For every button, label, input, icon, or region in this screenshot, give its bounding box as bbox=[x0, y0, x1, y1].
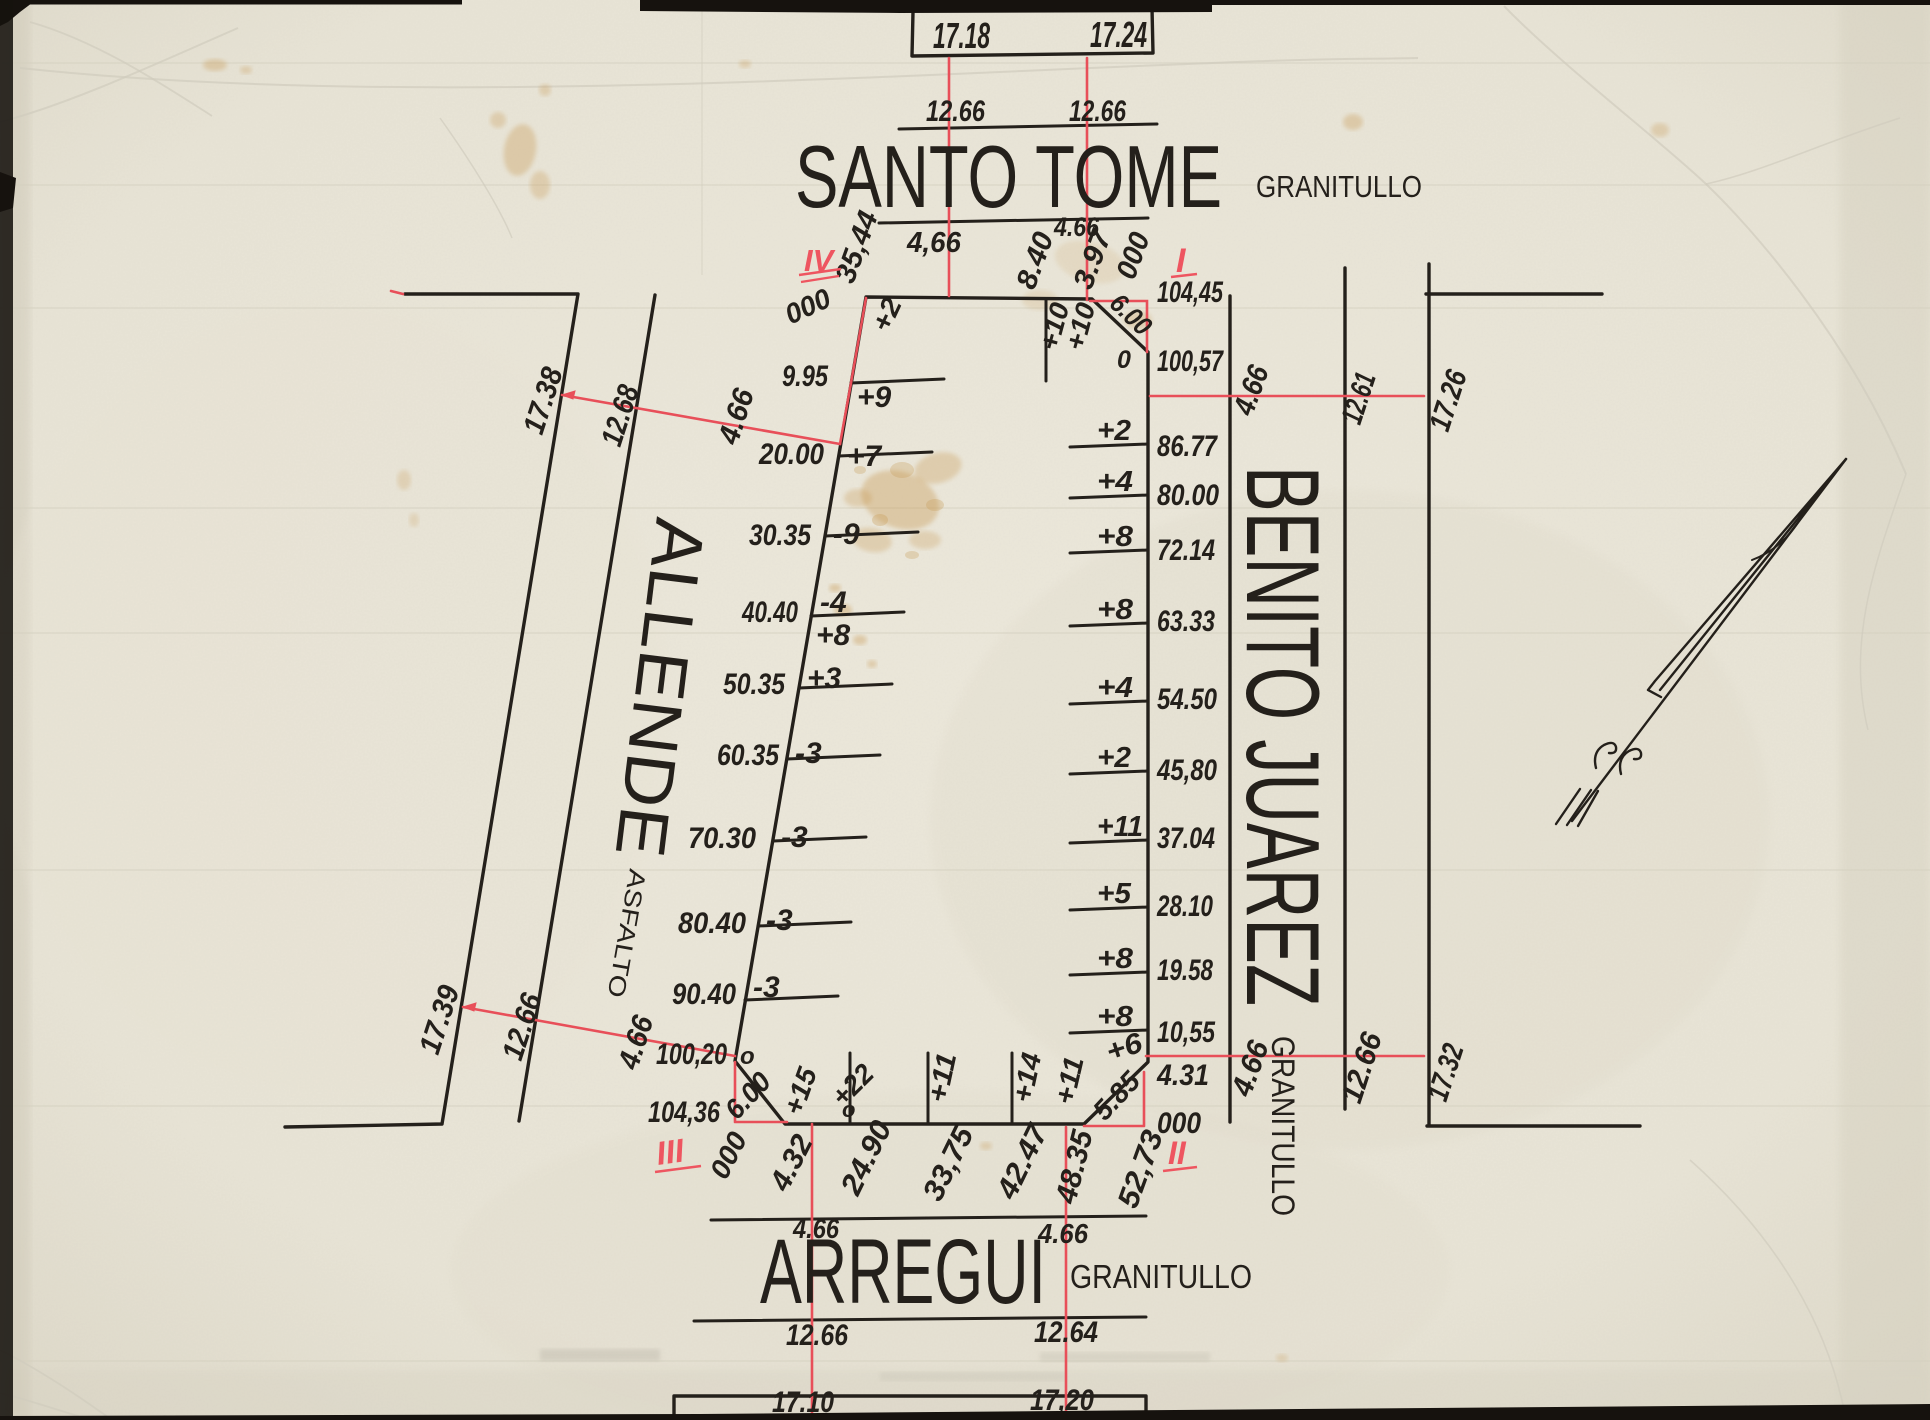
svg-text:50.35: 50.35 bbox=[723, 668, 786, 701]
svg-text:+2: +2 bbox=[1097, 742, 1131, 774]
svg-text:+9: +9 bbox=[857, 381, 892, 414]
svg-text:4,66: 4,66 bbox=[906, 227, 962, 259]
svg-text:37.04: 37.04 bbox=[1157, 822, 1215, 855]
svg-text:o: o bbox=[740, 1043, 755, 1070]
svg-text:ARREGUI: ARREGUI bbox=[760, 1221, 1046, 1323]
svg-text:-3: -3 bbox=[753, 971, 780, 1004]
svg-text:-3: -3 bbox=[781, 821, 808, 854]
svg-text:+2: +2 bbox=[1097, 415, 1131, 447]
svg-text:20.00: 20.00 bbox=[758, 438, 824, 471]
svg-text:63.33: 63.33 bbox=[1157, 605, 1215, 638]
svg-text:30.35: 30.35 bbox=[749, 519, 812, 552]
svg-text:104,36: 104,36 bbox=[648, 1096, 720, 1129]
svg-text:+8: +8 bbox=[1097, 1001, 1134, 1033]
svg-text:-9: -9 bbox=[833, 518, 860, 551]
svg-text:+5: +5 bbox=[1097, 878, 1132, 910]
svg-text:100,57: 100,57 bbox=[1157, 345, 1224, 378]
svg-text:70.30: 70.30 bbox=[688, 822, 756, 855]
svg-text:+11: +11 bbox=[1097, 811, 1143, 843]
svg-text:40.40: 40.40 bbox=[741, 596, 798, 629]
svg-text:4.31: 4.31 bbox=[1156, 1059, 1209, 1092]
svg-text:72.14: 72.14 bbox=[1157, 534, 1215, 567]
svg-text:12.66: 12.66 bbox=[926, 95, 985, 128]
svg-text:60.35: 60.35 bbox=[717, 739, 780, 772]
svg-text:GRANITULLO: GRANITULLO bbox=[1265, 1036, 1301, 1216]
svg-text:90.40: 90.40 bbox=[672, 978, 736, 1011]
svg-text:10,55: 10,55 bbox=[1157, 1016, 1216, 1049]
svg-text:19.58: 19.58 bbox=[1157, 954, 1213, 987]
svg-text:80.00: 80.00 bbox=[1157, 479, 1219, 512]
svg-text:12.64: 12.64 bbox=[1034, 1316, 1098, 1349]
svg-text:GRANITULLO: GRANITULLO bbox=[1256, 169, 1422, 204]
svg-text:+8: +8 bbox=[1097, 943, 1134, 975]
svg-text:+8: +8 bbox=[1097, 521, 1134, 553]
svg-text:28.10: 28.10 bbox=[1156, 890, 1213, 923]
svg-text:BENITO JUAREZ: BENITO JUAREZ bbox=[1224, 466, 1340, 1006]
svg-text:12.66: 12.66 bbox=[786, 1319, 848, 1352]
svg-text:II: II bbox=[1168, 1135, 1187, 1171]
svg-text:86.77: 86.77 bbox=[1157, 430, 1218, 463]
svg-text:GRANITULLO: GRANITULLO bbox=[1070, 1258, 1252, 1295]
svg-text:+8: +8 bbox=[1097, 594, 1134, 626]
svg-text:-3: -3 bbox=[795, 737, 822, 770]
svg-text:12.66: 12.66 bbox=[1069, 95, 1126, 128]
svg-text:+8: +8 bbox=[816, 619, 851, 652]
svg-text:-4: -4 bbox=[820, 586, 847, 619]
svg-text:+4: +4 bbox=[1097, 672, 1133, 704]
svg-text:+3: +3 bbox=[807, 662, 842, 695]
svg-text:+4: +4 bbox=[1097, 466, 1133, 498]
svg-text:80.40: 80.40 bbox=[678, 907, 746, 940]
svg-text:54.50: 54.50 bbox=[1157, 683, 1217, 716]
svg-text:100,20: 100,20 bbox=[656, 1038, 727, 1071]
svg-text:o: o bbox=[842, 1097, 855, 1122]
svg-text:-3: -3 bbox=[766, 904, 793, 937]
svg-text:17.18: 17.18 bbox=[933, 15, 990, 56]
svg-text:45,80: 45,80 bbox=[1156, 754, 1217, 787]
svg-text:0: 0 bbox=[1117, 346, 1131, 374]
svg-text:9.95: 9.95 bbox=[782, 360, 829, 393]
svg-text:+7: +7 bbox=[847, 440, 883, 473]
svg-text:104,45: 104,45 bbox=[1157, 276, 1224, 309]
svg-text:17.24: 17.24 bbox=[1090, 14, 1147, 55]
